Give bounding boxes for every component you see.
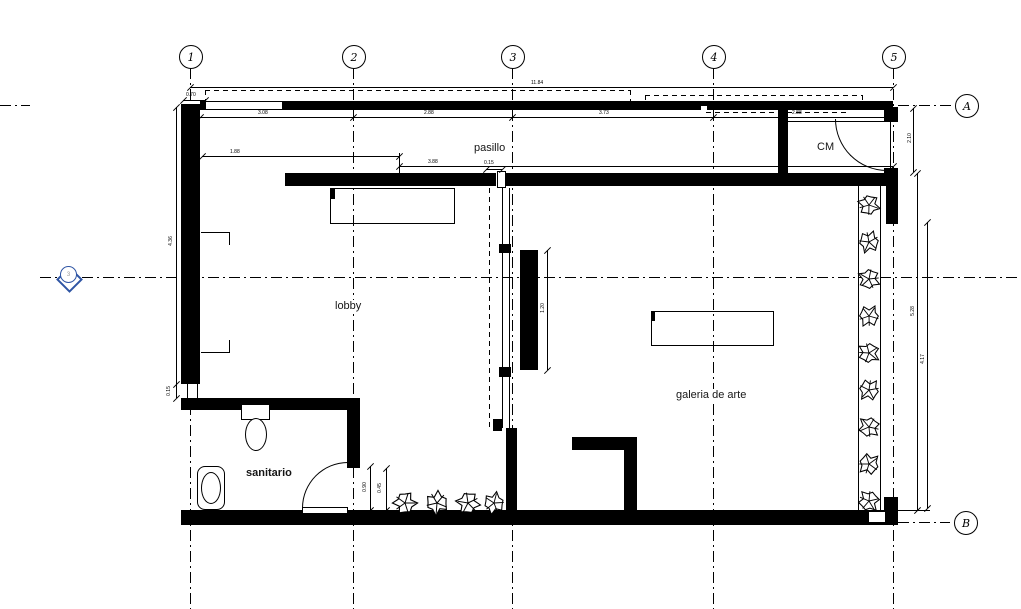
- grid-bubble-3: 3: [501, 45, 525, 69]
- dim-tick: [173, 395, 180, 402]
- glass-partition-line: [509, 188, 510, 428]
- shrub-icon: [856, 229, 882, 255]
- canopy-dashed-line: [706, 112, 846, 113]
- grid-line-3: [512, 68, 513, 609]
- dim-overall: 11.84: [531, 80, 543, 86]
- shrub-icon: [423, 489, 451, 517]
- dim-seg23: 2.88: [424, 110, 434, 116]
- shrub-icon: [856, 192, 882, 218]
- dim-door: 0.90: [362, 482, 368, 492]
- grid-bubble-a: A: [955, 94, 979, 118]
- shrub-icon: [454, 489, 482, 517]
- wall-bottom: [181, 510, 898, 525]
- dim-line-panel: [547, 250, 548, 370]
- glass-partition-line: [502, 188, 503, 428]
- wall-niche-top: [201, 232, 229, 233]
- room-label-lobby: lobby: [334, 300, 362, 312]
- grid-bubble-2: 2: [342, 45, 366, 69]
- canopy-dashed-line: [645, 95, 862, 96]
- shrub-icon: [856, 303, 882, 329]
- wall-entry-l-vertical: [624, 450, 637, 510]
- column-right-top: [886, 186, 898, 224]
- grid-bubble-a-label: A: [963, 100, 971, 113]
- dim-line-grid-segments: [183, 117, 898, 118]
- dim-line-offset: [183, 100, 205, 101]
- grid-line-a-left: [0, 105, 30, 106]
- grid-bubble-5: 5: [882, 45, 906, 69]
- wall-pasillo-south-right: [506, 173, 893, 186]
- grid-bubble-4-label: 4: [711, 51, 718, 64]
- grid-line-5: [893, 68, 894, 609]
- shrub-icon: [856, 451, 882, 477]
- dim-line-right-a: [917, 173, 918, 510]
- dim-cm-side: 2.10: [907, 133, 913, 143]
- shrub-icon: [856, 266, 882, 292]
- wall-top: [200, 101, 893, 110]
- wall-top-notch: [701, 106, 707, 110]
- dim-pasillo-right: 3.88: [428, 159, 438, 165]
- partition-bracket: [499, 244, 511, 253]
- wall-sanitario-east: [347, 398, 360, 468]
- canopy-dashed-line: [205, 90, 630, 91]
- window-left-line: [197, 384, 198, 398]
- dim-planter: 0.45: [377, 483, 383, 493]
- grid-line-2: [353, 68, 354, 609]
- toilet-bowl: [245, 418, 267, 451]
- dim-seg45: 2.88: [792, 110, 802, 116]
- shrub-icon: [856, 340, 882, 366]
- wall-left: [181, 104, 200, 384]
- dim-left-height: 4.36: [168, 236, 174, 246]
- wall-niche-top: [229, 232, 230, 245]
- dim-tick: [544, 367, 551, 374]
- section-marker-label: 3: [67, 272, 70, 278]
- grid-bubble-5-label: 5: [891, 51, 898, 64]
- grid-line-a-right: [898, 105, 952, 106]
- room-label-cm: CM: [816, 141, 835, 153]
- dim-seg12: 3.08: [258, 110, 268, 116]
- wall-entry-l-horizontal: [572, 437, 637, 450]
- gallery-table: [651, 311, 774, 346]
- shrub-icon: [481, 490, 507, 516]
- canopy-dashed-end: [630, 90, 631, 101]
- lobby-desk: [330, 188, 455, 224]
- section-marker-circle-icon: 3: [60, 266, 77, 283]
- wall-niche-bottom: [201, 352, 229, 353]
- gallery-table-mark: [652, 312, 655, 321]
- window-top-left: [205, 101, 283, 110]
- partition-hidden-line: [489, 188, 490, 428]
- partition-bracket: [499, 367, 511, 377]
- dim-line-pasillo-right: [399, 166, 893, 167]
- floor-plan-canvas: 11.84 3.08 2.88 3.73 2.88 0.70 1.88 3.88…: [0, 0, 1021, 609]
- grid-bubble-b-label: B: [962, 517, 970, 530]
- room-label-sanitario: sanitario: [245, 467, 293, 479]
- sink-bowl: [201, 472, 221, 504]
- partition-bracket: [493, 419, 502, 431]
- dim-line-right-b: [927, 222, 928, 508]
- sanitario-door-swing-arc: [302, 462, 348, 508]
- grid-bubble-2-label: 2: [351, 51, 358, 64]
- dim-panel: 1.20: [540, 303, 546, 313]
- dim-line-door: [370, 466, 371, 512]
- grid-bubble-3-label: 3: [510, 51, 517, 64]
- dim-left-small: 0.15: [166, 386, 172, 396]
- dim-line-cm-east: [913, 108, 914, 172]
- grid-bubble-1-label: 1: [188, 51, 195, 64]
- dim-seg34: 3.73: [599, 110, 609, 116]
- window-left-line: [187, 384, 188, 398]
- wall-gap-insert: [497, 171, 506, 188]
- cm-door-swing-arc: [835, 119, 887, 171]
- wall-sanitario-north: [181, 398, 360, 410]
- grid-bubble-1: 1: [179, 45, 203, 69]
- wall-pasillo-south-left: [285, 173, 496, 186]
- dim-line-pasillo-left: [202, 156, 399, 157]
- lobby-desk-mark: [331, 189, 335, 199]
- cm-door-leaf: [890, 120, 891, 170]
- dim-pasillo-left: 1.88: [230, 149, 240, 155]
- exhibit-panel: [520, 250, 538, 370]
- dim-right-a: 5.28: [910, 306, 916, 316]
- grid-line-b-right: [898, 522, 950, 523]
- grid-bubble-4: 4: [702, 45, 726, 69]
- shrub-icon: [856, 414, 882, 440]
- room-label-pasillo: pasillo: [473, 142, 506, 154]
- dim-line-left-wall: [176, 107, 177, 384]
- grid-bubble-b: B: [954, 511, 978, 535]
- shrub-icon: [391, 489, 419, 517]
- dim-line-overall: [190, 87, 893, 88]
- shrub-icon: [856, 488, 882, 514]
- dim-line-planter: [386, 468, 387, 512]
- wall-entry-stub: [506, 428, 517, 510]
- room-label-galeria: galeria de arte: [675, 389, 747, 401]
- shrub-icon: [856, 377, 882, 403]
- sanitario-door-leaf: [302, 507, 348, 514]
- dim-right-b: 4.17: [920, 354, 926, 364]
- wall-niche-bottom: [229, 340, 230, 353]
